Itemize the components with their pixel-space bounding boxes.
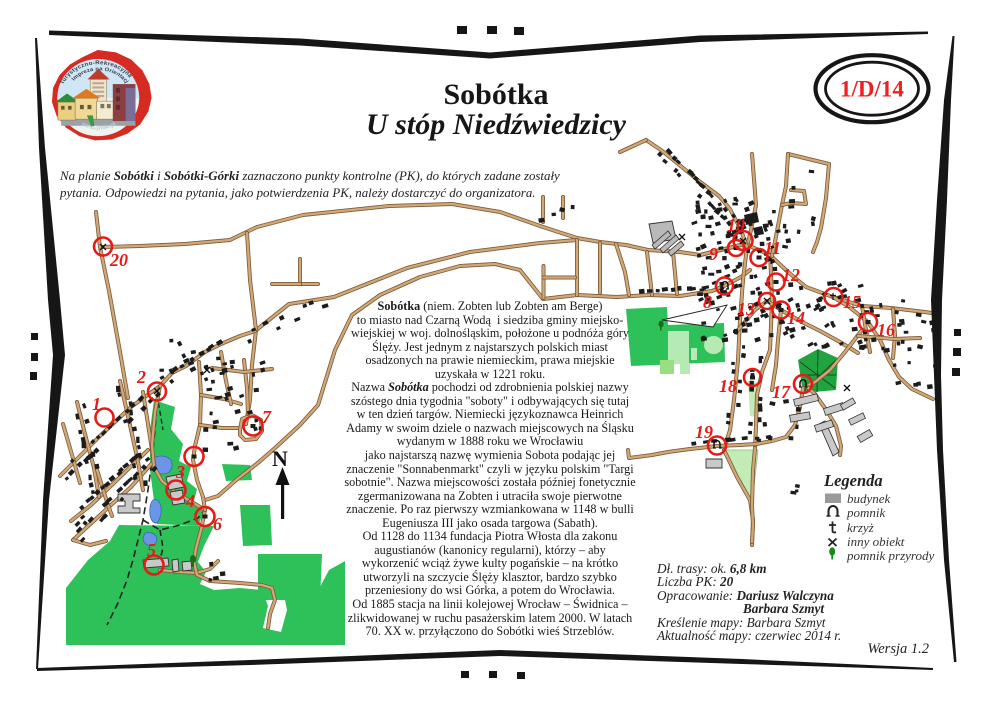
svg-text:14: 14: [787, 308, 805, 328]
svg-text:19: 19: [695, 422, 713, 442]
svg-text:20: 20: [109, 250, 128, 270]
svg-text:11: 11: [764, 238, 781, 258]
svg-text:2: 2: [136, 367, 146, 387]
svg-text:9: 9: [709, 244, 718, 264]
svg-text:15: 15: [843, 292, 861, 312]
svg-text:17: 17: [772, 382, 791, 402]
svg-text:12: 12: [782, 265, 800, 285]
svg-text:10: 10: [727, 215, 745, 235]
svg-text:4: 4: [185, 491, 195, 511]
svg-text:7: 7: [262, 407, 272, 427]
svg-text:5: 5: [147, 540, 156, 560]
svg-text:1: 1: [92, 394, 101, 414]
svg-text:N: N: [272, 446, 288, 471]
svg-text:8: 8: [703, 292, 712, 312]
svg-text:13: 13: [737, 299, 755, 319]
svg-text:6: 6: [213, 514, 222, 534]
svg-text:18: 18: [719, 376, 737, 396]
svg-text:3: 3: [175, 462, 185, 482]
svg-text:16: 16: [877, 320, 895, 340]
